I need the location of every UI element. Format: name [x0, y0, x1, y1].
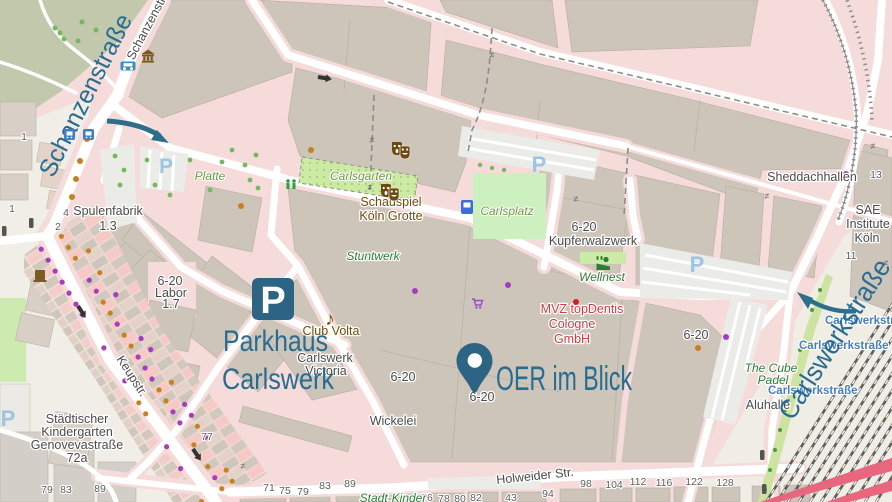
- svg-text:79: 79: [41, 484, 53, 496]
- svg-text:P: P: [260, 280, 285, 322]
- svg-text:P: P: [532, 152, 547, 177]
- svg-text:P: P: [690, 252, 705, 277]
- svg-text:≠: ≠: [368, 182, 373, 192]
- svg-text:Städtischer: Städtischer: [46, 412, 109, 426]
- svg-text:Kupferwalzwerk: Kupferwalzwerk: [549, 234, 638, 248]
- svg-text:116: 116: [656, 477, 673, 489]
- svg-text:94: 94: [542, 488, 554, 500]
- svg-text:98: 98: [580, 478, 592, 490]
- svg-text:≠: ≠: [370, 135, 375, 145]
- svg-text:Parkhaus: Parkhaus: [223, 325, 328, 358]
- svg-text:Carlsgarten: Carlsgarten: [330, 169, 392, 183]
- svg-text:≠: ≠: [574, 194, 579, 204]
- svg-text:Spulenfabrik: Spulenfabrik: [73, 204, 143, 218]
- svg-text:P: P: [159, 155, 173, 178]
- svg-text:6-20: 6-20: [683, 328, 708, 342]
- svg-text:1: 1: [21, 131, 27, 143]
- svg-text:≠: ≠: [871, 141, 876, 151]
- svg-text:≠: ≠: [765, 191, 770, 201]
- svg-text:Köln: Köln: [854, 231, 879, 245]
- svg-text:Cologne: Cologne: [549, 317, 596, 331]
- svg-text:89: 89: [94, 483, 106, 495]
- svg-text:82: 82: [470, 492, 482, 502]
- svg-text:1: 1: [9, 203, 15, 215]
- svg-text:122: 122: [685, 476, 703, 488]
- svg-text:112: 112: [630, 476, 647, 488]
- svg-text:2: 2: [55, 221, 61, 233]
- svg-text:83: 83: [60, 484, 72, 496]
- svg-text:Platte: Platte: [195, 169, 226, 183]
- svg-text:P: P: [1, 406, 16, 431]
- svg-text:89: 89: [344, 478, 356, 490]
- svg-text:6-20: 6-20: [571, 220, 596, 234]
- svg-text:72a: 72a: [67, 451, 88, 465]
- svg-text:4: 4: [63, 207, 69, 219]
- svg-text:Sheddachhallen: Sheddachhallen: [767, 170, 857, 184]
- svg-text:43: 43: [505, 492, 517, 502]
- svg-text:104: 104: [605, 479, 623, 491]
- svg-text:1.7: 1.7: [162, 297, 179, 311]
- svg-text:Köln Grotte: Köln Grotte: [359, 209, 422, 223]
- svg-text:OER im Blick: OER im Blick: [496, 360, 633, 398]
- svg-text:SAE: SAE: [855, 203, 880, 217]
- svg-text:Wickelei: Wickelei: [370, 414, 417, 428]
- svg-text:Stuntwerk: Stuntwerk: [346, 249, 400, 263]
- svg-text:Institute: Institute: [846, 217, 890, 231]
- svg-text:78: 78: [438, 493, 450, 502]
- svg-text:1.3: 1.3: [99, 219, 116, 233]
- svg-text:Kindergarten: Kindergarten: [41, 425, 113, 439]
- svg-text:13: 13: [870, 169, 882, 181]
- svg-text:128: 128: [716, 477, 734, 489]
- svg-text:75: 75: [279, 485, 291, 497]
- svg-text:77: 77: [201, 431, 213, 443]
- svg-text:MVZ topDentis: MVZ topDentis: [541, 302, 624, 316]
- svg-text:83: 83: [319, 480, 331, 492]
- svg-text:6-20: 6-20: [390, 370, 415, 384]
- svg-text:80: 80: [454, 493, 466, 502]
- svg-text:≠: ≠: [241, 461, 246, 471]
- svg-text:Carlswerk: Carlswerk: [222, 363, 335, 396]
- svg-text:71: 71: [263, 482, 275, 494]
- svg-text:11: 11: [846, 250, 857, 262]
- svg-text:≠: ≠: [490, 50, 495, 60]
- svg-text:Wellnest: Wellnest: [579, 270, 625, 284]
- svg-text:79: 79: [297, 486, 309, 498]
- svg-text:Stadt-Kinder: Stadt-Kinder: [360, 491, 428, 502]
- svg-text:Carlsplatz: Carlsplatz: [480, 204, 533, 218]
- svg-text:GmbH: GmbH: [554, 332, 590, 346]
- svg-text:Genovevastraße: Genovevastraße: [31, 438, 123, 452]
